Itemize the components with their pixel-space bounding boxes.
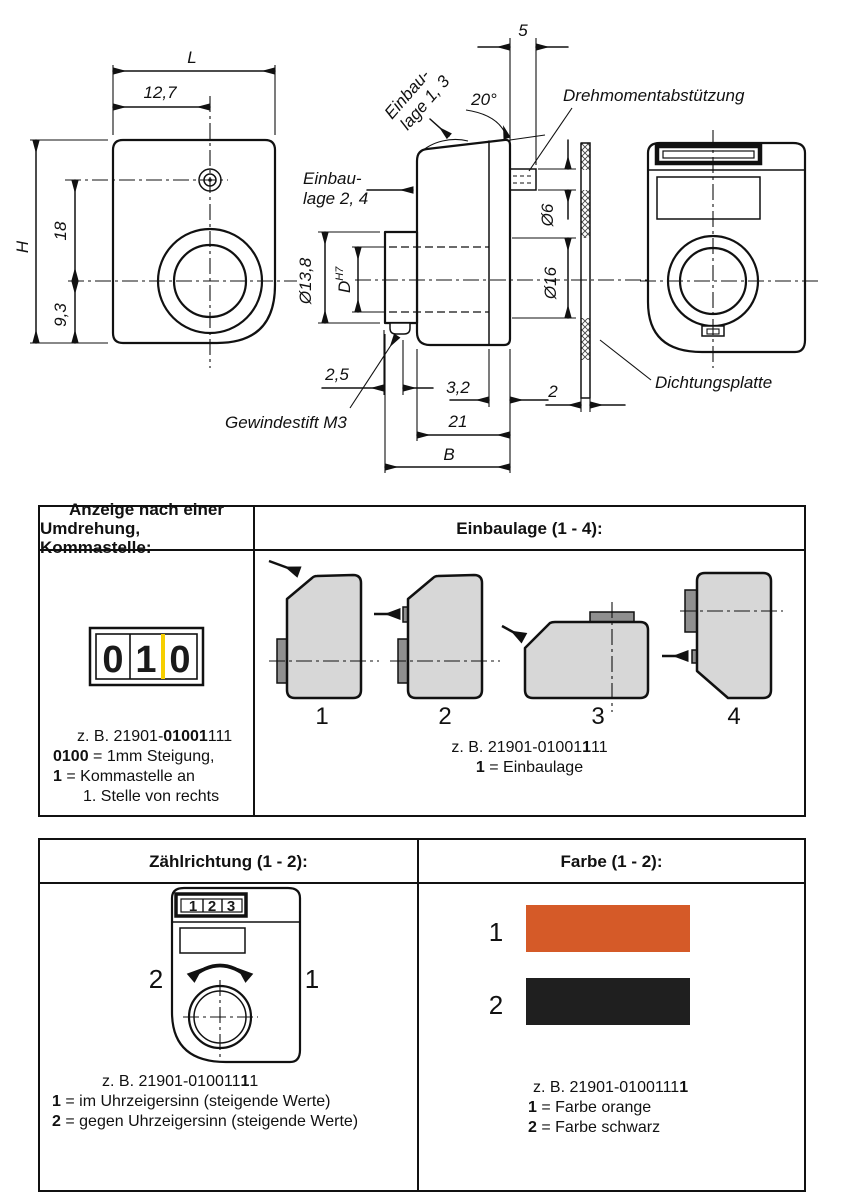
dim-label-5: 5	[518, 21, 528, 40]
dim-label-3-2: 3,2	[446, 378, 470, 397]
direction-label-1: 1	[305, 964, 319, 994]
farbe-header: Farbe (1 - 2):	[419, 840, 804, 882]
counter-digit: 0	[102, 639, 123, 681]
technical-drawing: L 12,7 H 18 9,3	[0, 0, 846, 500]
counter-digit: 2	[208, 898, 216, 915]
anzeige-header-line1: Anzeige nach einer	[69, 500, 224, 519]
farbe-cell: 1 2 z. B. 21901-01001111 1 = Farbe orang…	[419, 884, 804, 1190]
counter-digit: 0	[169, 639, 190, 681]
hub	[385, 232, 417, 323]
dim-label-dia16: Ø16	[541, 266, 560, 300]
color-option-2-label: 2	[481, 990, 511, 1021]
counter-digit: 3	[227, 898, 235, 915]
counter-digit: 1	[135, 639, 156, 681]
dim-label-9-3: 9,3	[51, 303, 70, 327]
farbe-caption: z. B. 21901-01001111 1 = Farbe orange 2 …	[528, 1078, 688, 1138]
label-plate-back	[657, 177, 760, 219]
einbaulage-caption: z. B. 21901-01001111 1 = Einbaulage	[255, 738, 804, 778]
torque-support-notch	[510, 169, 536, 190]
anzeige-header: Anzeige nach einer Umdrehung, Kommastell…	[40, 507, 255, 549]
datasheet-page: L 12,7 H 18 9,3	[0, 0, 846, 1200]
zaehlrichtung-farbe-table: Zählrichtung (1 - 2): Farbe (1 - 2): 1 2…	[38, 838, 806, 1192]
dim-label-B: B	[443, 445, 454, 464]
anzeige-einbaulage-table: Anzeige nach einer Umdrehung, Kommastell…	[38, 505, 806, 817]
color-swatch-black	[526, 978, 690, 1025]
mounting-position-1: 1	[269, 561, 379, 730]
dim-label-L: L	[187, 48, 196, 67]
dim-label-H: H	[13, 240, 32, 253]
label-dichtungsplatte: Dichtungsplatte	[655, 373, 772, 392]
label-plate	[180, 928, 245, 953]
dim-label-12-7: 12,7	[143, 83, 177, 102]
label-gewindestift: Gewindestift M3	[225, 413, 347, 432]
dim-label-D-H7: DH7	[334, 266, 354, 293]
color-swatch-orange	[526, 905, 690, 952]
counter-digit: 1	[189, 898, 197, 915]
anzeige-cell: 0 1 0 z. B. 21901-01001111 0100 = 1mm St…	[40, 551, 255, 815]
front-view: L 12,7 H 18 9,3	[13, 48, 297, 368]
einbaulage-cell: 1 2	[255, 551, 804, 815]
svg-text:3: 3	[591, 703, 604, 730]
svg-text:Einbau-: Einbau-	[303, 169, 362, 188]
zaehlrichtung-cell: 1 2 3 2 1 z. B. 21901-01001111 1 = im Uh…	[40, 884, 419, 1190]
dim-label-dia13-8: Ø13,8	[296, 257, 315, 305]
label-einbaulage-1-3: Einbau- lage 1, 3	[381, 59, 454, 135]
mounting-position-3: 3	[502, 602, 648, 730]
dim-label-21: 21	[448, 412, 468, 431]
svg-text:4: 4	[727, 703, 740, 730]
anzeige-caption: z. B. 21901-01001111 0100 = 1mm Steigung…	[53, 727, 232, 807]
color-option-1-label: 1	[481, 917, 511, 948]
mounting-position-2: 2	[374, 575, 500, 730]
direction-label-2: 2	[149, 964, 163, 994]
dim-label-18: 18	[51, 221, 70, 240]
dim-label-dia6: Ø6	[538, 203, 557, 227]
dim-label-2: 2	[547, 382, 558, 401]
svg-text:2: 2	[438, 703, 451, 730]
side-view: 5 20° Einbau- lage 1, 3 Einbau- lage 2, …	[225, 21, 745, 473]
zaehlrichtung-figure: 1 2 3 2 1	[40, 884, 417, 1190]
dim-label-2-5: 2,5	[324, 365, 349, 384]
label-drehmomentabstuetzung: Drehmomentabstützung	[563, 86, 745, 105]
svg-text:1: 1	[315, 703, 328, 730]
zaehlrichtung-caption: z. B. 21901-01001111 1 = im Uhrzeigersin…	[52, 1072, 358, 1132]
back-view	[640, 130, 822, 368]
zaehlrichtung-header: Zählrichtung (1 - 2):	[40, 840, 419, 882]
svg-text:lage 2, 4: lage 2, 4	[303, 189, 368, 208]
einbaulage-header: Einbaulage (1 - 4):	[255, 507, 804, 549]
label-einbaulage-2-4: Einbau- lage 2, 4	[303, 169, 368, 208]
mounting-position-4: 4	[662, 573, 783, 730]
set-screw-side	[390, 323, 410, 334]
dim-label-20deg: 20°	[470, 90, 497, 109]
